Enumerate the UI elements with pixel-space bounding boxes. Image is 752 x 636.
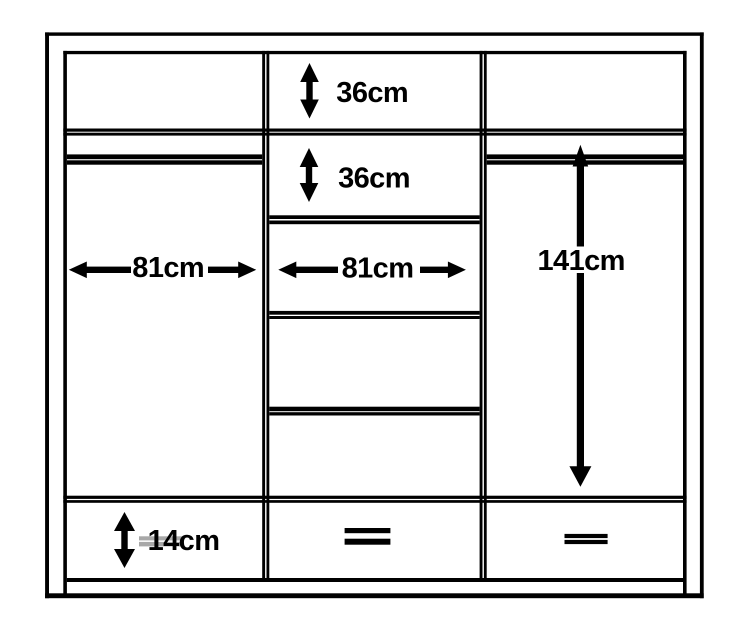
- svg-text:81cm: 81cm: [132, 252, 204, 284]
- svg-text:14cm: 14cm: [148, 525, 220, 557]
- svg-text:141cm: 141cm: [538, 245, 625, 277]
- svg-text:36cm: 36cm: [336, 77, 408, 109]
- svg-text:81cm: 81cm: [342, 253, 414, 285]
- svg-text:36cm: 36cm: [338, 163, 410, 195]
